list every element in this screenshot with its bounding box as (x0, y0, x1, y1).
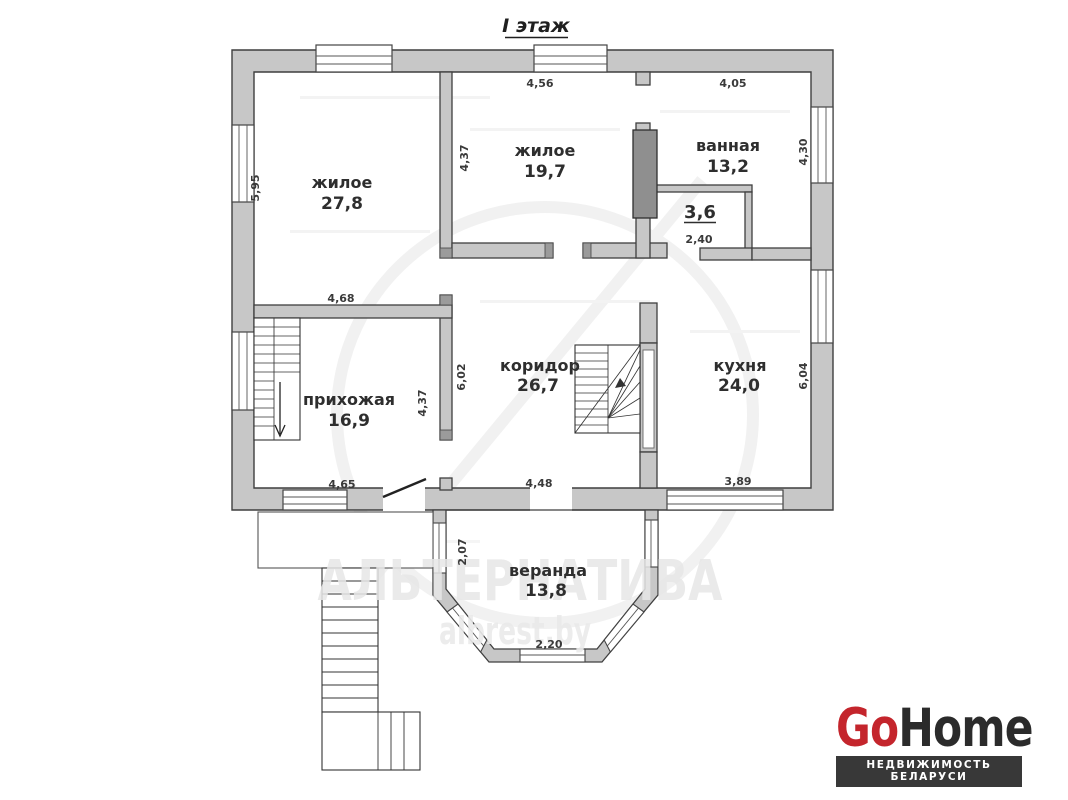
plan-title-group: I этаж (502, 15, 571, 38)
wall-smallroom-north (650, 185, 752, 192)
windows (232, 45, 833, 510)
window (283, 490, 347, 510)
dim-hallway-height: 4,37 (416, 389, 429, 416)
wall-bathroom-west-stub (636, 72, 650, 85)
window (811, 270, 833, 343)
room-label-smallroom-area: 3,6 (684, 202, 716, 223)
room-label-living1-name: жилое (312, 173, 373, 192)
dim-corridor-width: 4,48 (525, 477, 552, 490)
room-label-hallway-name: прихожая (303, 390, 395, 409)
wall-living2-south-right (583, 243, 667, 258)
walls (232, 50, 833, 513)
door-jamb (440, 295, 452, 305)
floor-plan-page: АЛЬТЕРНАТИВА albrest.by I этаж жилое 27,… (0, 0, 1068, 800)
wall-niche (643, 350, 654, 448)
dim-hallway-width: 4,65 (328, 478, 355, 491)
dim-living1-height: 5,95 (249, 174, 262, 201)
dim-kitchen-height: 6,04 (797, 362, 810, 389)
door-jamb (583, 243, 591, 258)
wall-living1-east-upper (440, 72, 452, 258)
dim-smallroom-width: 2,40 (685, 233, 712, 246)
room-label-kitchen-area: 24,0 (718, 376, 760, 396)
dim-living1-width: 4,68 (327, 292, 354, 305)
door-jamb (440, 248, 452, 258)
room-label-veranda-area: 13,8 (525, 581, 567, 601)
dim-corridor-height: 6,02 (455, 363, 468, 390)
logo-go-text: Go (836, 698, 898, 759)
wall-living2-south-left (452, 243, 553, 258)
dim-living2-height: 4,37 (458, 144, 471, 171)
door-jamb (545, 243, 553, 258)
window (811, 107, 833, 183)
window (667, 490, 783, 510)
dim-kitchen-width: 3,89 (724, 475, 751, 488)
room-label-living2-name: жилое (515, 141, 576, 160)
dim-bathroom-width: 4,05 (719, 77, 746, 90)
room-label-veranda-name: веранда (509, 561, 587, 580)
dim-veranda-height: 2,07 (456, 538, 469, 565)
wall-smallroom-east (745, 192, 752, 252)
wall-living1-south (254, 305, 452, 318)
room-label-living2-area: 19,7 (524, 162, 566, 182)
brand-logo: GoHome НЕДВИЖИМОСТЬ БЕЛАРУСИ (836, 702, 1026, 787)
dim-veranda-bay-width: 2,20 (535, 638, 562, 651)
brand-logo-word: GoHome (836, 702, 988, 755)
wall-smallroom-south (700, 248, 752, 260)
veranda-door-opening (530, 486, 572, 513)
entrance-opening (383, 486, 425, 513)
room-label-kitchen-name: кухня (714, 356, 767, 375)
dim-bathroom-height: 4,30 (797, 138, 810, 165)
floor-plan-svg: АЛЬТЕРНАТИВА albrest.by I этаж жилое 27,… (0, 0, 1068, 800)
window (232, 332, 254, 410)
watermark-line1: АЛЬТЕРНАТИВА (318, 549, 724, 614)
dim-living2-width: 4,56 (526, 77, 553, 90)
plan-title: I этаж (502, 15, 571, 37)
logo-home-text: Home (898, 698, 1032, 759)
room-label-hallway-area: 16,9 (328, 411, 370, 431)
chimney-block (633, 130, 657, 218)
wall-bathroom-kitchen (752, 248, 811, 260)
window (316, 45, 392, 72)
wall-hall-door-jamb (440, 478, 452, 490)
winder-staircase (575, 345, 640, 433)
wall-kitchen-west-upper (640, 303, 657, 343)
outer-wall-ring (232, 50, 833, 510)
room-label-corridor-area: 26,7 (517, 376, 559, 396)
room-label-bathroom-name: ванная (696, 136, 760, 155)
watermark-line2: albrest.by (439, 609, 591, 653)
window (534, 45, 607, 72)
room-label-bathroom-area: 13,2 (707, 157, 749, 177)
room-label-living1-area: 27,8 (321, 194, 363, 214)
room-label-corridor-name: коридор (500, 356, 580, 375)
door-jamb (440, 430, 452, 440)
internal-staircase (254, 318, 300, 440)
wall-kitchen-west-lower (640, 452, 657, 488)
logo-tagline: НЕДВИЖИМОСТЬ БЕЛАРУСИ (836, 756, 1022, 787)
